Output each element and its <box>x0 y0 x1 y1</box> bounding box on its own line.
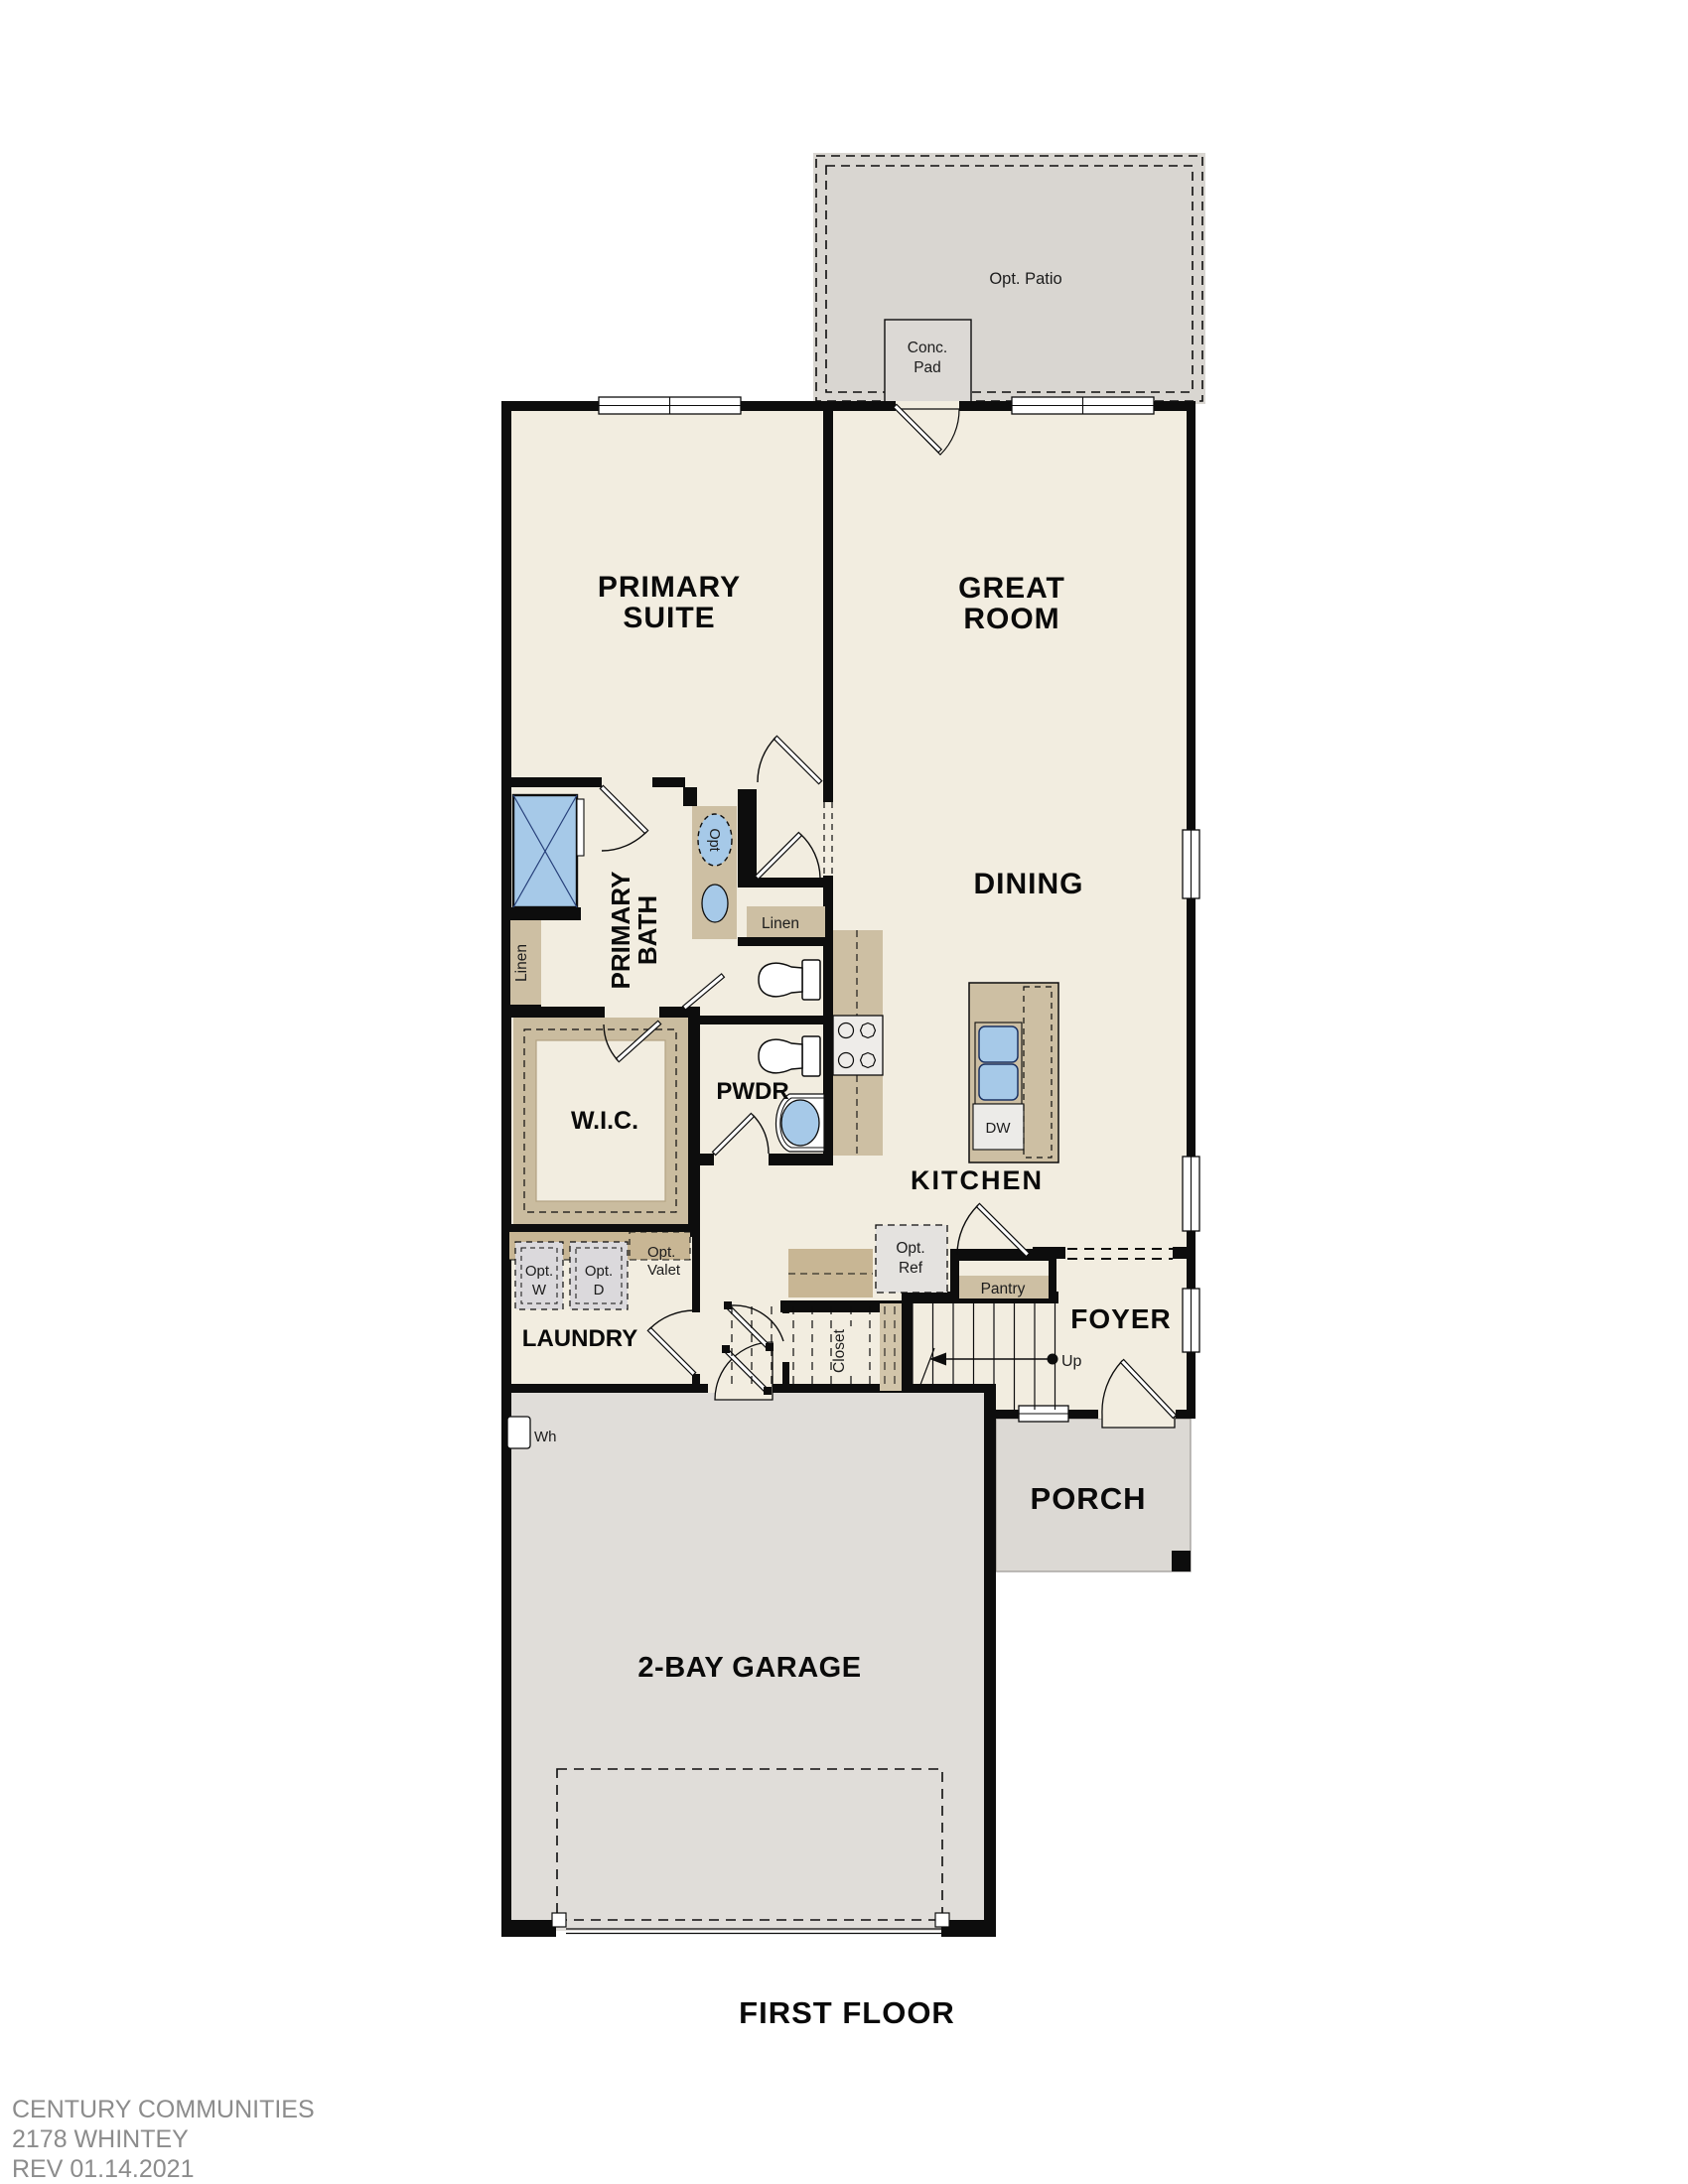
svg-text:DINING: DINING <box>974 868 1084 900</box>
svg-text:D: D <box>594 1282 605 1298</box>
svg-text:GREAT: GREAT <box>958 572 1065 605</box>
svg-text:DW: DW <box>986 1120 1012 1137</box>
svg-text:Opt.: Opt. <box>896 1240 924 1257</box>
svg-text:LAUNDRY: LAUNDRY <box>522 1325 637 1352</box>
svg-text:Ref: Ref <box>899 1260 923 1277</box>
svg-text:REV 01.14.2021: REV 01.14.2021 <box>12 2155 194 2183</box>
svg-text:FOYER: FOYER <box>1070 1303 1171 1334</box>
svg-text:Valet: Valet <box>647 1262 681 1279</box>
svg-text:Linen: Linen <box>513 944 530 982</box>
svg-text:KITCHEN: KITCHEN <box>911 1165 1044 1195</box>
svg-text:PORCH: PORCH <box>1031 1481 1147 1516</box>
svg-text:BATH: BATH <box>633 895 662 965</box>
svg-text:PRIMARY: PRIMARY <box>606 872 635 990</box>
svg-text:Opt.: Opt. <box>647 1244 675 1261</box>
svg-text:W.I.C.: W.I.C. <box>571 1107 638 1135</box>
svg-text:Linen: Linen <box>762 915 799 932</box>
svg-text:Opt: Opt <box>706 828 722 851</box>
svg-text:Opt. Patio: Opt. Patio <box>989 270 1061 288</box>
svg-text:2178 WHINTEY: 2178 WHINTEY <box>12 2125 189 2153</box>
svg-text:Pantry: Pantry <box>981 1281 1026 1297</box>
svg-text:PRIMARY: PRIMARY <box>598 571 741 604</box>
svg-text:Opt.: Opt. <box>585 1263 613 1280</box>
svg-text:SUITE: SUITE <box>623 602 715 634</box>
svg-text:2-BAY GARAGE: 2-BAY GARAGE <box>637 1652 861 1684</box>
svg-text:PWDR: PWDR <box>716 1078 788 1105</box>
svg-text:W: W <box>532 1282 547 1298</box>
svg-text:Closet: Closet <box>831 1328 848 1373</box>
svg-text:Conc.: Conc. <box>908 340 948 356</box>
svg-text:Wh: Wh <box>534 1429 557 1445</box>
svg-text:Opt.: Opt. <box>525 1263 553 1280</box>
svg-text:Up: Up <box>1061 1353 1082 1370</box>
svg-text:ROOM: ROOM <box>963 603 1059 635</box>
svg-text:FIRST FLOOR: FIRST FLOOR <box>739 1995 955 2030</box>
svg-text:Pad: Pad <box>914 359 941 376</box>
svg-text:CENTURY COMMUNITIES: CENTURY COMMUNITIES <box>12 2096 315 2123</box>
